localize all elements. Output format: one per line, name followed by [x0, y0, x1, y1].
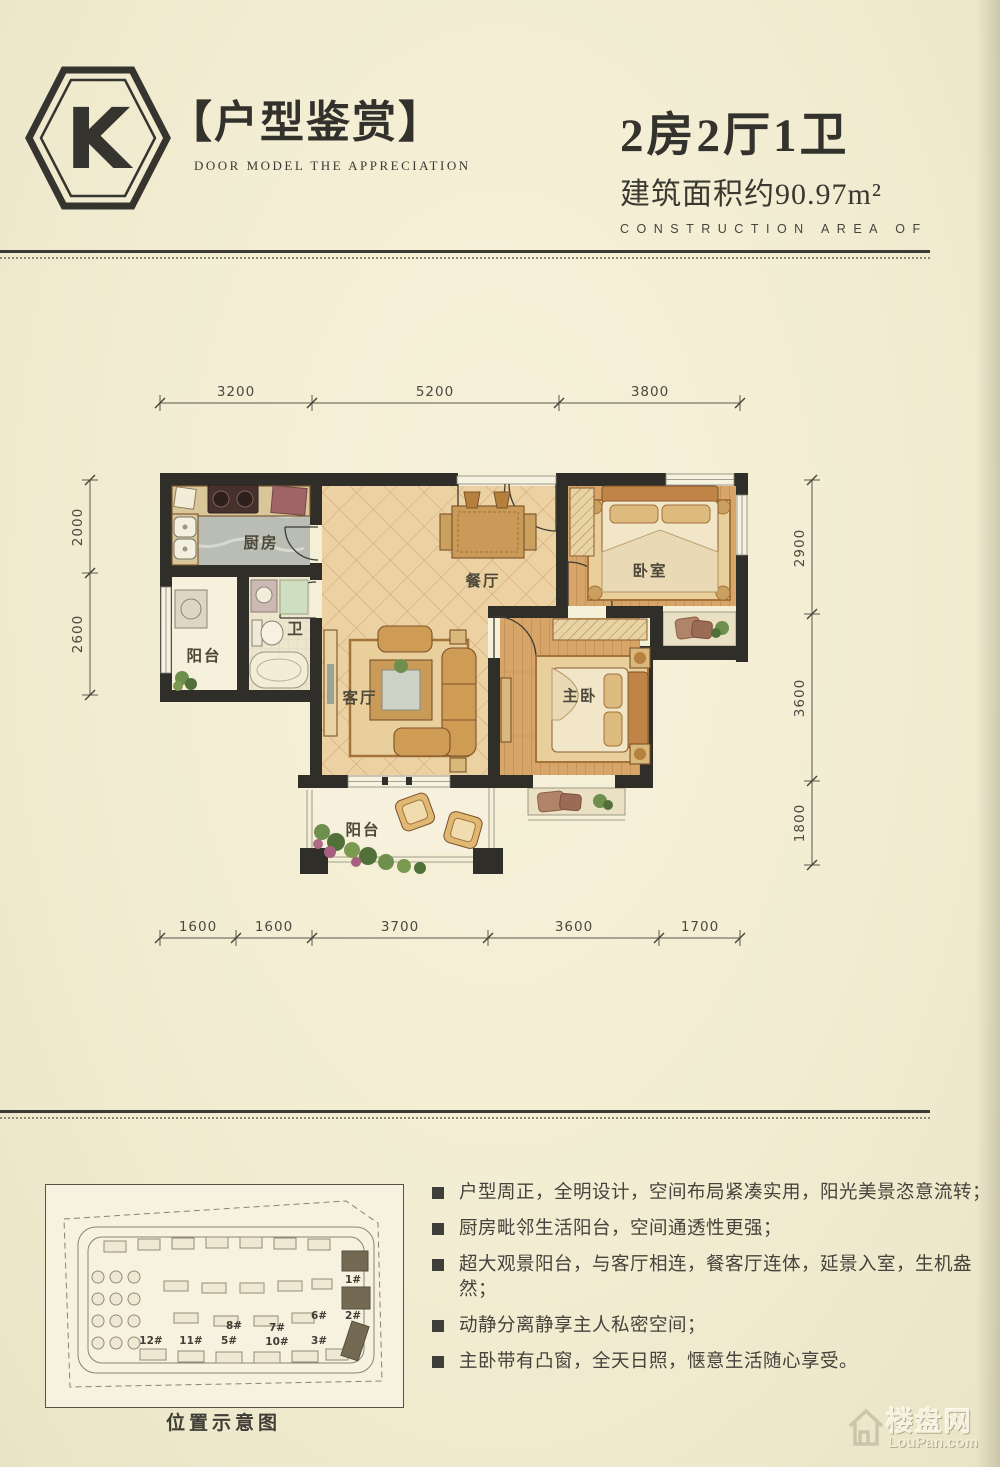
- bullet-square-icon: [432, 1259, 444, 1271]
- bedroom-furniture: [570, 486, 730, 600]
- unit-area-caption: CONSTRUCTION AREA OF: [620, 222, 950, 236]
- logo-hexagon: K: [24, 58, 172, 218]
- entry-threshold: [457, 476, 556, 484]
- loveseat-icon: [394, 728, 450, 756]
- dim-value: 1800: [792, 804, 808, 842]
- feature-text: 户型周正，全明设计，空间布局紧凑实用，阳光美景恣意流转；: [459, 1181, 991, 1206]
- dim-value: 1700: [681, 919, 719, 935]
- dim-value: 3800: [631, 384, 669, 400]
- bathtub-icon: [250, 652, 308, 688]
- bullet-square-icon: [432, 1356, 444, 1368]
- pillow-icon: [610, 505, 658, 523]
- corner-cabinet: [174, 487, 197, 510]
- feature-text: 动静分离静享主人私密空间；: [459, 1314, 706, 1339]
- bath-label: 卫: [287, 620, 305, 638]
- divider-bottom: [0, 1110, 930, 1122]
- unit-area: 建筑面积约90.97m²: [620, 169, 950, 213]
- bedroom-label: 卧室: [632, 561, 667, 580]
- dim-value: 3600: [555, 919, 593, 935]
- armchair-icon: [378, 626, 432, 652]
- master-pillow-icon: [604, 674, 622, 708]
- floor-plan: 厨房 卫 阳台 餐厅 客厅 卧室 主卧 阳台 3200 5200 3800 16…: [60, 375, 830, 975]
- building-label: 2#: [345, 1310, 361, 1322]
- bullet-square-icon: [432, 1187, 444, 1199]
- building-label: 6#: [311, 1310, 327, 1322]
- building-label: 1#: [345, 1274, 361, 1286]
- watermark: 楼盘网 LouPan.com: [846, 1392, 1000, 1462]
- feature-item: 动静分离静享主人私密空间；: [432, 1314, 992, 1339]
- dimension-right: 2900 3600 1800: [792, 475, 820, 870]
- side-balcony-label: 阳台: [186, 646, 221, 665]
- feature-item: 主卧带有凸窗，全天日照，惬意生活随心享受。: [432, 1350, 992, 1375]
- dresser-icon: [501, 678, 511, 742]
- dining-table-icon: [452, 506, 524, 558]
- bullet-square-icon: [432, 1223, 444, 1235]
- building-label: 5#: [221, 1335, 237, 1347]
- logo-letter: K: [65, 90, 133, 188]
- site-map-caption: 位置示意图: [45, 1408, 402, 1435]
- living-label: 客厅: [342, 688, 377, 707]
- building-label: 11#: [179, 1335, 203, 1347]
- dim-value: 1600: [179, 919, 217, 935]
- flyer-page: { "header": { "logo_letter": "K", "serie…: [0, 0, 1000, 1467]
- fridge-icon: [271, 486, 307, 516]
- dimension-top: 3200 5200 3800: [155, 384, 745, 411]
- feature-item: 户型周正，全明设计，空间布局紧凑实用，阳光美景恣意流转；: [432, 1181, 992, 1206]
- feature-text: 超大观景阳台，与客厅相连，餐客厅连体，延景入室，生机盎然；: [459, 1253, 992, 1303]
- dim-value: 2900: [792, 529, 808, 567]
- building-label: 12#: [139, 1335, 163, 1347]
- master-wardrobe-icon: [553, 619, 647, 640]
- dimension-left: 2000 2600: [70, 475, 98, 700]
- dim-value: 2000: [70, 508, 86, 546]
- feature-list: 户型周正，全明设计，空间布局紧凑实用，阳光美景恣意流转； 厨房毗邻生活阳台，空间…: [432, 1181, 992, 1386]
- highlighted-buildings: [341, 1251, 370, 1361]
- bed-headboard: [602, 486, 718, 503]
- master-label: 主卧: [562, 686, 597, 705]
- unit-type: 2房2厅1卫: [620, 96, 950, 165]
- wardrobe-icon: [570, 488, 594, 556]
- dimension-bottom: 1600 1600 3700 3600 1700: [155, 919, 745, 946]
- site-map: 1# 2# 6# 8# 7# 12# 11# 5# 10# 3#: [45, 1184, 404, 1408]
- building-label: 3#: [311, 1335, 327, 1347]
- feature-text: 厨房毗邻生活阳台，空间通透性更强；: [459, 1217, 782, 1242]
- feature-item: 厨房毗邻生活阳台，空间通透性更强；: [432, 1217, 992, 1242]
- bullet-square-icon: [432, 1320, 444, 1332]
- house-icon: [846, 1406, 886, 1448]
- dining-label: 餐厅: [464, 571, 500, 590]
- vase-icon: [464, 492, 480, 508]
- building-label: 10#: [265, 1336, 289, 1348]
- dim-value: 5200: [416, 384, 454, 400]
- divider-top: [0, 250, 930, 262]
- page-subtitle: DOOR MODEL THE APPRECIATION: [194, 158, 471, 174]
- building-label: 8#: [226, 1320, 242, 1332]
- unit-spec-block: 2房2厅1卫 建筑面积约90.97m² CONSTRUCTION AREA OF: [620, 96, 950, 236]
- dim-value: 3200: [217, 384, 255, 400]
- bottom-balcony-label: 阳台: [345, 820, 380, 839]
- kitchen-label: 厨房: [243, 533, 278, 552]
- feature-text: 主卧带有凸窗，全天日照，惬意生活随心享受。: [459, 1350, 858, 1375]
- washing-machine-icon: [175, 590, 207, 628]
- dim-value: 3600: [792, 679, 808, 717]
- dim-value: 1600: [255, 919, 293, 935]
- page-title: 【户型鉴赏】: [168, 86, 444, 150]
- master-headboard: [626, 672, 648, 748]
- watermark-domain: LouPan.com: [888, 1434, 978, 1451]
- building-label: 7#: [269, 1322, 285, 1334]
- dim-value: 3700: [381, 919, 419, 935]
- feature-item: 超大观景阳台，与客厅相连，餐客厅连体，延景入室，生机盎然；: [432, 1253, 992, 1303]
- shower-icon: [280, 580, 308, 614]
- dim-value: 2600: [70, 615, 86, 653]
